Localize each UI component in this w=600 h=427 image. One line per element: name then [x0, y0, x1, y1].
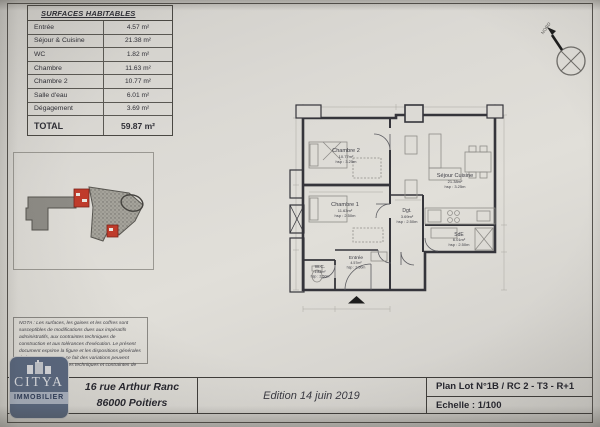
- room-height: hsp : 2.50m: [449, 242, 471, 247]
- logo-subtitle: IMMOBILIER: [10, 392, 68, 404]
- row-value: 21.38 m²: [104, 35, 172, 48]
- plan-reference: Plan Lot N°1B / RC 2 - T3 - R+1: [436, 378, 574, 396]
- site-plan-box: [13, 152, 154, 270]
- photographed-plan-sheet: SURFACES HABITABLES Entrée 4.57 m² Séjou…: [0, 0, 600, 427]
- room-area: 1.82m²: [314, 270, 326, 274]
- row-value: 6.01 m²: [104, 89, 172, 102]
- wardrobe-chambre1: [353, 228, 383, 242]
- row-label: Séjour & Cuisine: [28, 35, 104, 48]
- room-area: 4.57m²: [350, 261, 362, 265]
- wardrobe-chambre2: [353, 158, 381, 178]
- exterior-walls: [290, 105, 503, 292]
- row-label: Chambre 2: [28, 75, 104, 88]
- room-labels: Chambre 2 10.77m² hsp : 3.25m Séjour Cui…: [311, 148, 474, 279]
- building-footprint: [26, 187, 145, 241]
- sofa: [429, 134, 441, 168]
- row-value: 3.69 m²: [104, 103, 172, 116]
- room-height: hsp : 3.25m: [336, 159, 358, 164]
- table-row: Dégagement 3.69 m²: [28, 103, 172, 117]
- room-height: hsp : 2.50m: [347, 266, 366, 270]
- table-row: Salle d'eau 6.01 m²: [28, 89, 172, 103]
- table-row: Entrée 4.57 m²: [28, 21, 172, 35]
- north-arrow: [552, 35, 562, 50]
- fridge: [428, 210, 441, 222]
- surfaces-table-title: SURFACES HABITABLES: [41, 9, 136, 18]
- table-row: Chambre 11.63 m²: [28, 62, 172, 76]
- row-label: Entrée: [28, 21, 104, 34]
- sink: [477, 211, 490, 221]
- site-key-plan: [14, 153, 151, 267]
- row-label: WC: [28, 48, 104, 61]
- table-row: Séjour & Cuisine 21.38 m²: [28, 35, 172, 49]
- plan-scale: Echelle : 1/100: [436, 397, 501, 414]
- total-value: 59.87 m²: [104, 116, 172, 135]
- row-label: Dégagement: [28, 103, 104, 116]
- row-value: 4.57 m²: [104, 21, 172, 34]
- north-label: NORD: [540, 21, 552, 35]
- row-value: 10.77 m²: [104, 75, 172, 88]
- row-label: Chambre: [28, 62, 104, 75]
- row-value: 11.63 m²: [104, 62, 172, 75]
- table-row: Chambre 2 10.77 m²: [28, 75, 172, 89]
- surfaces-table: SURFACES HABITABLES Entrée 4.57 m² Séjou…: [27, 5, 173, 136]
- room-height: hsp : 2.50m: [311, 275, 330, 279]
- room-height: hsp : 2.50m: [335, 213, 357, 218]
- entry-cabinet: [371, 252, 387, 261]
- table-row: WC 1.82 m²: [28, 48, 172, 62]
- entrance-arrow: [348, 296, 365, 304]
- floor-plan: Chambre 2 10.77m² hsp : 3.25m Séjour Cui…: [283, 100, 523, 315]
- dining-table: [465, 152, 491, 172]
- surfaces-table-header: SURFACES HABITABLES: [28, 6, 172, 21]
- logo-name: CITYA: [14, 374, 64, 390]
- total-label: TOTAL: [28, 116, 104, 135]
- address-block: 16 rue Arthur Ranc 86000 Poitiers: [69, 380, 195, 411]
- room-height: hsp : 3.25m: [445, 184, 467, 189]
- address-line1: 16 rue Arthur Ranc: [69, 380, 195, 396]
- buildings-icon: [24, 360, 54, 374]
- table-total-row: TOTAL 59.87 m²: [28, 116, 172, 135]
- row-label: Salle d'eau: [28, 89, 104, 102]
- north-compass: NORD: [540, 18, 590, 80]
- address-line2: 86000 Poitiers: [69, 396, 195, 412]
- row-value: 1.82 m²: [104, 48, 172, 61]
- citya-logo: CITYA IMMOBILIER: [10, 357, 68, 418]
- edition-date: Edition 14 juin 2019: [197, 378, 426, 413]
- cabinet: [405, 136, 417, 154]
- highlighted-lot: [74, 189, 89, 207]
- title-block: 16 rue Arthur Ranc 86000 Poitiers Editio…: [7, 377, 592, 414]
- room-height: hsp : 2.50m: [397, 219, 419, 224]
